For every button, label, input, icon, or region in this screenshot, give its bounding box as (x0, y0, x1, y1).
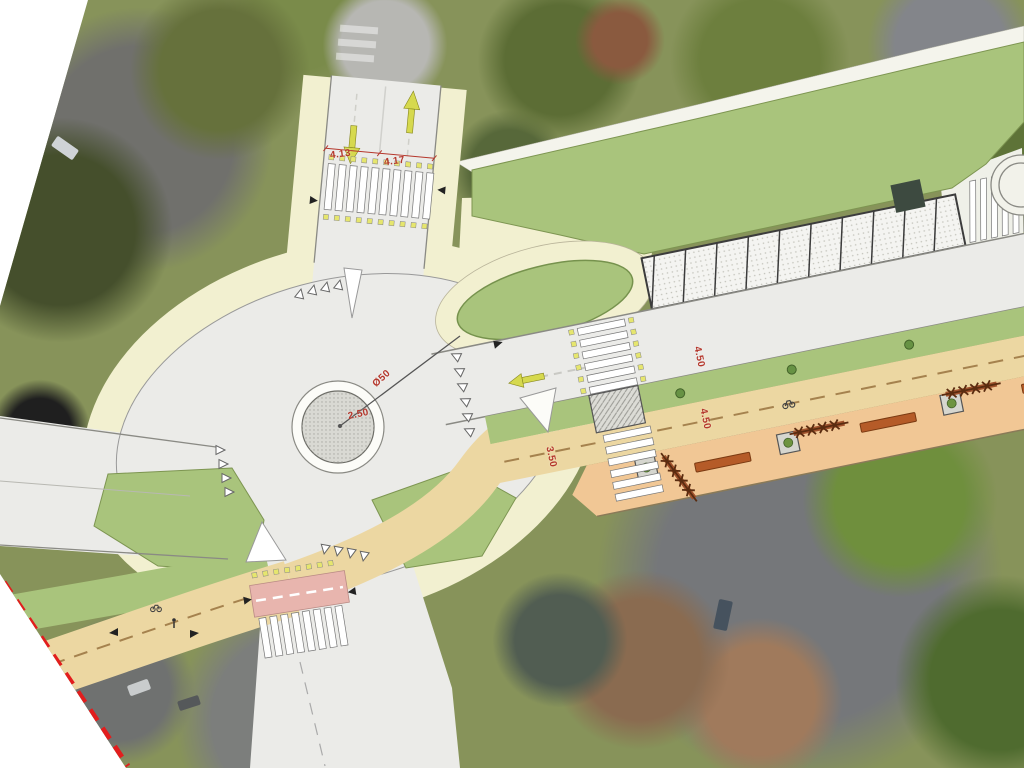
north-approach-road (284, 73, 467, 299)
site-plan-svg (0, 0, 1024, 768)
site-plan-screenshot: 4.13 4.17 Ø50 2.50 4.50 4.50 3.50 (0, 0, 1024, 768)
plan-clip-area: 4.13 4.17 Ø50 2.50 4.50 4.50 3.50 (0, 0, 1024, 768)
